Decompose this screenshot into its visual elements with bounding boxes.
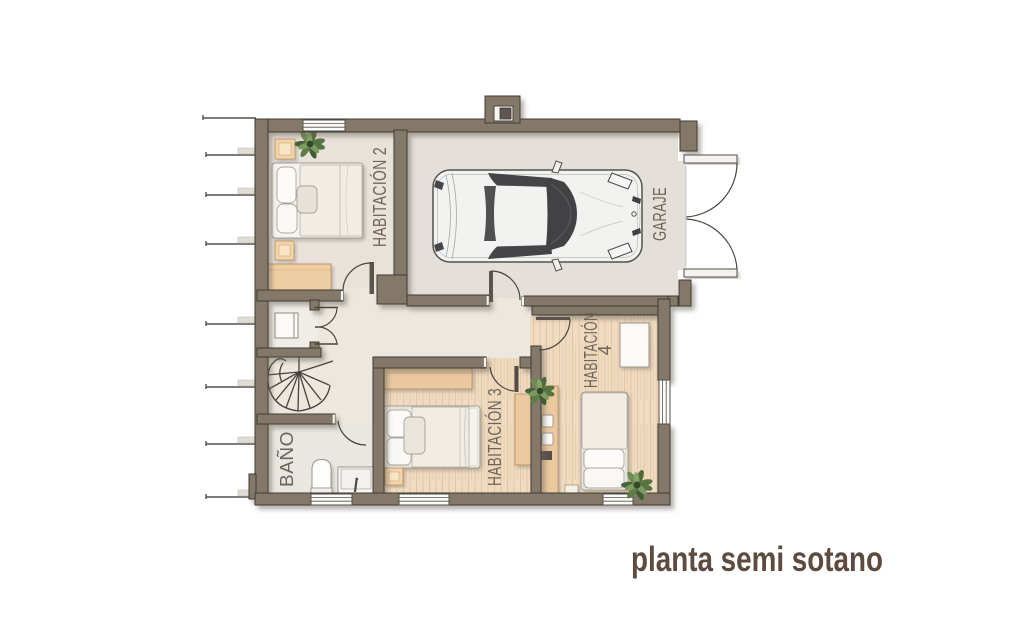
svg-text:BAÑO: BAÑO — [276, 431, 297, 487]
svg-text:HABITACIÓN 2: HABITACIÓN 2 — [369, 147, 390, 247]
svg-text:4: 4 — [595, 345, 615, 356]
svg-text:planta semi sotano: planta semi sotano — [631, 540, 883, 579]
svg-text:GARAJE: GARAJE — [650, 187, 670, 241]
svg-text:HABITACIÓN 3: HABITACIÓN 3 — [484, 388, 505, 486]
